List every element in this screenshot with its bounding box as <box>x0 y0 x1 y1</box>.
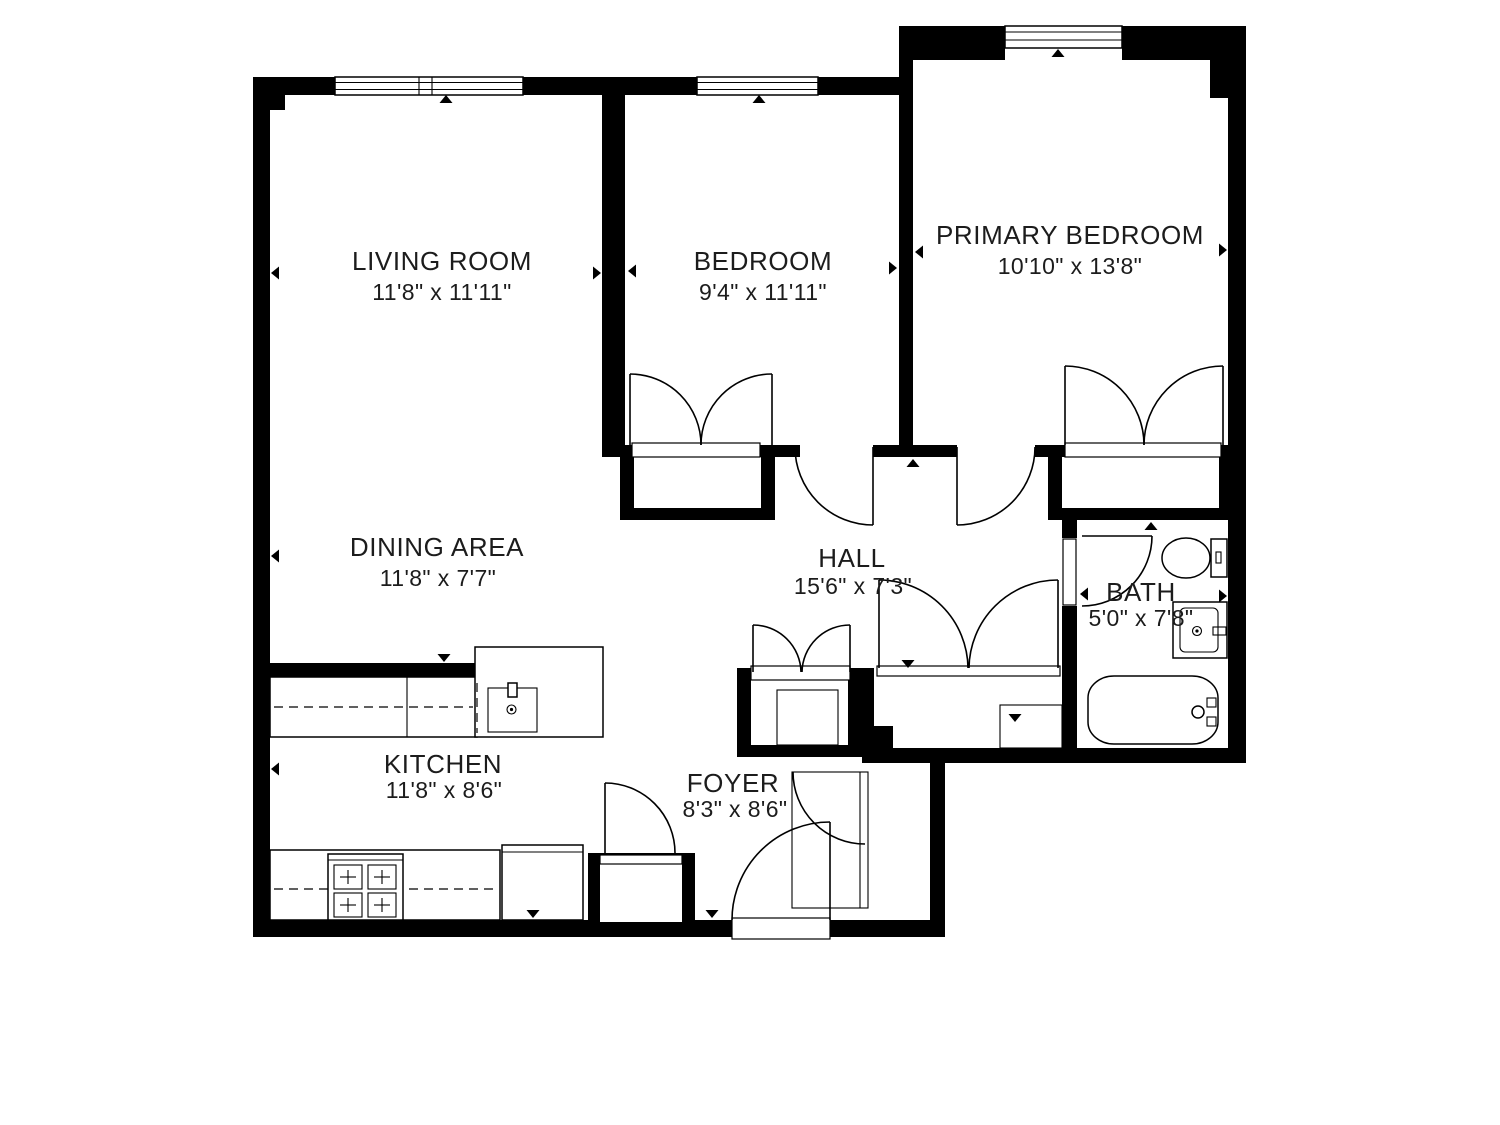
floor-plan-drawing: LIVING ROOM 11'8" x 11'11" BEDROOM 9'4" … <box>0 0 1500 1125</box>
bedroom-closet-doors <box>630 374 772 445</box>
arrow-left-living <box>271 267 279 280</box>
wall-bath-stub <box>1062 520 1077 538</box>
label-foyer: FOYER <box>687 768 780 798</box>
primary-closet-sill <box>1065 443 1221 457</box>
dims-kitchen: 11'8" x 8'6" <box>386 777 502 803</box>
bathtub <box>1088 676 1218 744</box>
hall-closet-b-bottom <box>874 748 930 763</box>
wall-right <box>1228 26 1246 763</box>
label-bedroom: BEDROOM <box>694 246 833 276</box>
toilet <box>1162 538 1227 578</box>
label-hall: HALL <box>818 543 885 573</box>
entry-door <box>732 822 830 920</box>
primary-bedroom-window <box>1005 26 1122 60</box>
kitchen-island <box>475 647 603 737</box>
hall-closet-b-notch <box>874 726 893 748</box>
kitchen-closet-sill <box>600 855 682 864</box>
bath-fixtures <box>1088 538 1227 744</box>
arrow-left-dining <box>271 550 279 563</box>
arrow-right-primary <box>1219 244 1227 257</box>
entry-threshold <box>732 918 830 939</box>
label-primary-bedroom: PRIMARY BEDROOM <box>936 220 1204 250</box>
hall-closet-b-left <box>862 668 874 763</box>
arrow-right-living <box>593 267 601 280</box>
hall-closet-a-bifold-doors <box>753 625 850 672</box>
stove <box>328 854 403 920</box>
dims-hall: 15'6" x 7'3" <box>794 573 912 599</box>
arrow-up-bedroom-window <box>753 95 766 103</box>
label-dining-area: DINING AREA <box>350 532 524 562</box>
arrow-down-dining <box>438 654 451 662</box>
arrow-left-bath <box>1080 588 1088 601</box>
kitchen-closet-door <box>605 783 675 853</box>
bedroom-window <box>697 77 818 95</box>
wall-bedroom-primary <box>899 26 913 457</box>
bedroom-door <box>795 447 873 525</box>
dims-living-room: 11'8" x 11'11" <box>372 279 511 305</box>
label-bath: BATH <box>1106 577 1176 607</box>
refrigerator <box>502 845 583 920</box>
island-faucet <box>508 683 517 697</box>
bedroom-closet-interior <box>634 457 761 508</box>
kitchen-closet-interior <box>600 864 682 922</box>
bedroom-closet-sill <box>632 443 760 457</box>
wall-living-bedroom <box>602 95 625 457</box>
counter-top-run <box>270 677 477 737</box>
wall-bath-west <box>1062 606 1077 748</box>
arrow-up-bath <box>1145 522 1158 530</box>
wall-dining-kitchen <box>253 663 477 677</box>
wall-left <box>253 77 270 937</box>
arrow-right-bedroom <box>889 262 897 275</box>
wall-foyer-right <box>930 748 945 937</box>
arrow-left-bedroom <box>628 265 636 278</box>
dims-dining-area: 11'8" x 7'7" <box>380 565 496 591</box>
wall-hall-seg2 <box>873 445 957 457</box>
wall-corner-top-right <box>1210 26 1246 98</box>
arrow-up-living-window <box>440 95 453 103</box>
label-living-room: LIVING ROOM <box>352 246 532 276</box>
living-room-window <box>335 77 523 95</box>
primary-bedroom-door <box>957 447 1035 525</box>
primary-closet-interior <box>1062 457 1219 508</box>
arrow-up-hall <box>907 459 920 467</box>
label-kitchen: KITCHEN <box>384 749 502 779</box>
arrow-left-kitchen <box>271 763 279 776</box>
arrow-down-foyer <box>706 910 719 918</box>
dims-bedroom: 9'4" x 11'11" <box>699 279 827 305</box>
arrow-left-primary <box>915 246 923 259</box>
primary-closet-doors <box>1065 366 1223 445</box>
arrow-right-bath <box>1219 590 1227 603</box>
dims-primary-bedroom: 10'10" x 13'8" <box>998 253 1143 279</box>
bath-door-sill <box>1063 539 1076 605</box>
floor-plan-page: LIVING ROOM 11'8" x 11'11" BEDROOM 9'4" … <box>0 0 1500 1125</box>
hall-closet-b-shelf <box>1000 705 1062 748</box>
dims-bath: 5'0" x 7'8" <box>1089 605 1194 631</box>
wall-bath-south <box>930 748 1246 763</box>
dims-foyer: 8'3" x 8'6" <box>683 796 788 822</box>
arrow-down-closet-b <box>1009 714 1022 722</box>
